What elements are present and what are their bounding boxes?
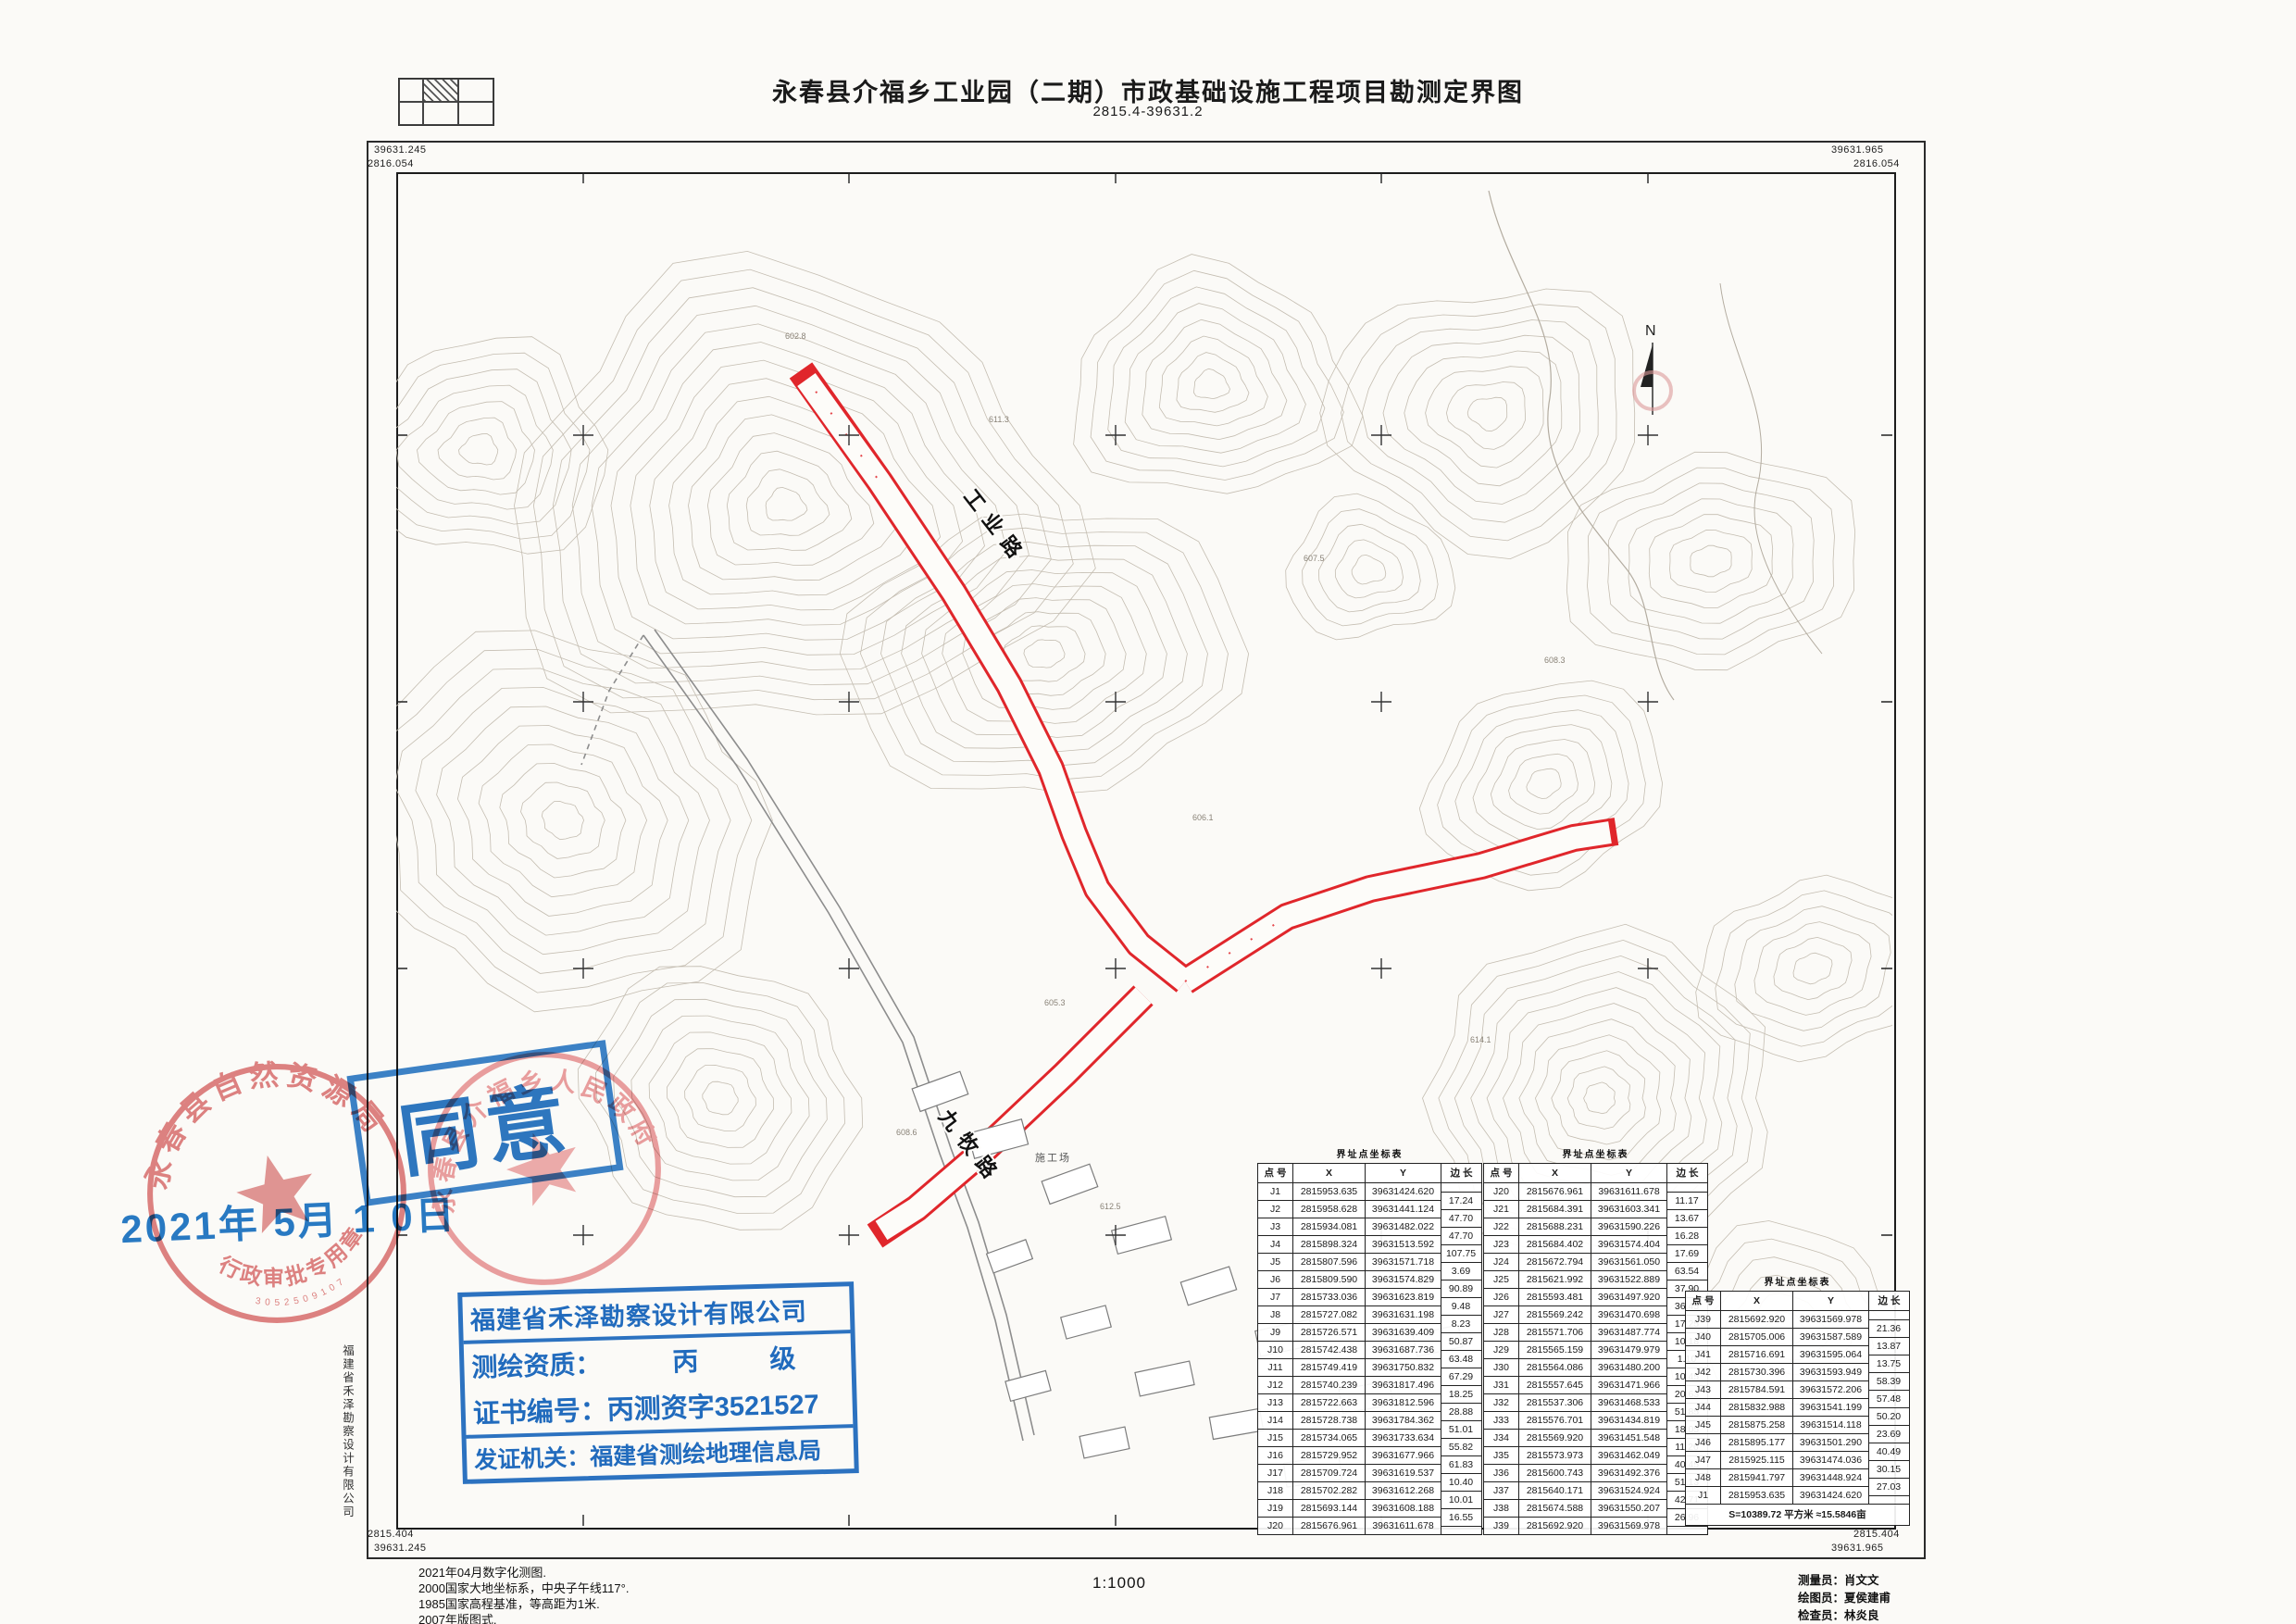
table-cell: 2815941.797 xyxy=(1721,1469,1793,1487)
table-title: 界址点坐标表 xyxy=(1685,1274,1910,1288)
table-cell: J30 xyxy=(1484,1359,1519,1377)
table-cell: 2815684.402 xyxy=(1519,1236,1591,1254)
table-cell: 2815571.706 xyxy=(1519,1324,1591,1342)
table-cell: 39631448.924 xyxy=(1793,1469,1869,1487)
contour-line xyxy=(1446,382,1525,450)
table-cell: J4 xyxy=(1258,1236,1293,1254)
table-cell: 2815749.419 xyxy=(1293,1359,1366,1377)
north-letter: N xyxy=(1645,323,1656,339)
contour-line xyxy=(1362,320,1598,523)
edge-length-value: 27.03 xyxy=(1869,1479,1909,1496)
corner-label: 39631.245 xyxy=(374,144,427,156)
contour-line xyxy=(479,744,647,897)
table-cell: J26 xyxy=(1484,1289,1519,1306)
table-cell: 2815674.588 xyxy=(1519,1500,1591,1518)
contour-line xyxy=(1527,768,1561,798)
table-cell: 39631451.548 xyxy=(1591,1430,1667,1447)
license-stamp: 福建省禾泽勘察设计有限公司 测绘资质： 丙 级 证书编号：丙测资字3521527… xyxy=(457,1281,859,1484)
table-cell: J16 xyxy=(1258,1447,1293,1465)
seal2-star xyxy=(498,1122,589,1211)
table-cell: 2815807.596 xyxy=(1293,1254,1366,1271)
license-qual-level: 级 xyxy=(769,1339,796,1377)
contour-line xyxy=(1341,305,1617,541)
edge-length-value: 30.15 xyxy=(1869,1461,1909,1479)
contour-line xyxy=(1491,740,1594,830)
grid-cross xyxy=(1371,425,1391,445)
edge-length-value: 63.48 xyxy=(1441,1351,1481,1368)
table-cell: 39631639.409 xyxy=(1366,1324,1441,1342)
table-cell: 2815684.391 xyxy=(1519,1201,1591,1218)
coordinate-table-3: 界址点坐标表 点 号XY边 长J392815692.92039631569.97… xyxy=(1685,1274,1910,1526)
table-cell: J3 xyxy=(1258,1218,1293,1236)
table-cell: 39631619.537 xyxy=(1366,1465,1441,1482)
contour-line xyxy=(457,726,668,917)
table-cell: 39631470.698 xyxy=(1591,1306,1667,1324)
edge-length-value: 47.70 xyxy=(1441,1228,1481,1245)
table-cell: J23 xyxy=(1484,1236,1519,1254)
table-cell: 39631471.966 xyxy=(1591,1377,1667,1394)
table-cell: J25 xyxy=(1484,1271,1519,1289)
table-cell: 2815640.171 xyxy=(1519,1482,1591,1500)
table-cell: 2815742.438 xyxy=(1293,1342,1366,1359)
contour-line xyxy=(1177,353,1249,413)
grid-cross xyxy=(573,425,593,445)
table-cell: 39631784.362 xyxy=(1366,1412,1441,1430)
table-cell: 2815875.258 xyxy=(1721,1417,1793,1434)
contour-line xyxy=(746,469,830,536)
table-cell: 2815784.591 xyxy=(1721,1381,1793,1399)
table-cell: 39631590.226 xyxy=(1591,1218,1667,1236)
table-cell: 2815569.242 xyxy=(1519,1306,1591,1324)
table-cell: 2815692.920 xyxy=(1721,1311,1793,1329)
legend-cell xyxy=(399,102,423,125)
corner-label: 39631.965 xyxy=(1831,1543,1884,1554)
table-cell: J46 xyxy=(1686,1434,1721,1452)
legend-cell xyxy=(458,102,493,125)
table-cell: J10 xyxy=(1258,1342,1293,1359)
edge-length-value: 40.49 xyxy=(1869,1443,1909,1461)
table-cell: J42 xyxy=(1686,1364,1721,1381)
table-cell: 39631750.832 xyxy=(1366,1359,1441,1377)
table-cell: J1 xyxy=(1686,1487,1721,1505)
table-header: X xyxy=(1293,1164,1366,1183)
area-summary: S=10389.72 平方米 ≈15.5846亩 xyxy=(1686,1505,1910,1526)
table-cell: J45 xyxy=(1686,1417,1721,1434)
edge-length-value: 50.87 xyxy=(1441,1333,1481,1351)
edge-length-value: 50.20 xyxy=(1869,1408,1909,1426)
edge-length-value: 13.87 xyxy=(1869,1338,1909,1355)
contour-line xyxy=(438,418,517,480)
contour-line xyxy=(685,1065,756,1131)
contour-line xyxy=(1716,891,1892,1046)
grid-cross xyxy=(1105,692,1126,712)
table-cell: 39631571.718 xyxy=(1366,1254,1441,1271)
table-cell: 2815573.973 xyxy=(1519,1447,1591,1465)
contour-line xyxy=(1608,483,1814,639)
contour-line xyxy=(1670,530,1753,592)
road-label-gongye: 工业路 xyxy=(959,485,1032,569)
contour-line xyxy=(1286,493,1455,640)
table-cell: J15 xyxy=(1258,1430,1293,1447)
table-cell: 39631434.819 xyxy=(1591,1412,1667,1430)
corner-label: 2816.054 xyxy=(368,158,414,169)
contour-line xyxy=(1320,289,1635,559)
table-cell: 39631501.290 xyxy=(1793,1434,1869,1452)
table-cell: 39631812.596 xyxy=(1366,1394,1441,1412)
legend-cell xyxy=(399,79,423,102)
table-cell: J18 xyxy=(1258,1482,1293,1500)
edge-length-value: 10.40 xyxy=(1441,1474,1481,1492)
table-cell: 39631611.678 xyxy=(1591,1183,1667,1201)
edge-length-value: 8.23 xyxy=(1441,1316,1481,1333)
table-cell: J34 xyxy=(1484,1430,1519,1447)
seal2-ring-text: 永春县介福乡人民政府 xyxy=(418,1043,666,1221)
table-header: Y xyxy=(1366,1164,1441,1183)
edge-length-value: 58.39 xyxy=(1869,1373,1909,1391)
table-header: 点 号 xyxy=(1686,1292,1721,1311)
corner-label: 39631.245 xyxy=(374,1543,427,1554)
table-cell: 39631817.496 xyxy=(1366,1377,1441,1394)
credits-block: 测量员：肖文文 绘图员：夏侯建甫 检查员：林炎良 xyxy=(1798,1572,1890,1624)
table-cell: 2815621.992 xyxy=(1519,1271,1591,1289)
contour-line xyxy=(1335,540,1403,598)
edge-length-value: 28.88 xyxy=(1441,1404,1481,1421)
contour-line xyxy=(667,1049,773,1148)
table-cell: 39631513.592 xyxy=(1366,1236,1441,1254)
table-cell: 2815565.159 xyxy=(1519,1342,1591,1359)
contour-line xyxy=(1193,369,1229,398)
grid-cross xyxy=(839,692,859,712)
spot-height-label: 608.3 xyxy=(1544,656,1566,665)
table-cell: 2815925.115 xyxy=(1721,1452,1793,1469)
table-cell: 2815693.144 xyxy=(1293,1500,1366,1518)
table-cell: 39631611.678 xyxy=(1366,1518,1441,1535)
table-cell: 39631623.819 xyxy=(1366,1289,1441,1306)
site-label: 施工场 xyxy=(1035,1151,1071,1164)
table-cell: 2815898.324 xyxy=(1293,1236,1366,1254)
edge-length-value: 11.17 xyxy=(1667,1193,1707,1210)
coordinate-table-1: 界址点坐标表 点 号XY边 长J12815953.63539631424.620… xyxy=(1257,1146,1482,1535)
edge-length-value: 61.83 xyxy=(1441,1456,1481,1474)
table-cell: J48 xyxy=(1686,1469,1721,1487)
grid-cross xyxy=(1638,692,1658,712)
contour-line xyxy=(1535,1035,1661,1160)
spot-height-label: 607.5 xyxy=(1304,554,1325,563)
table-cell: 39631468.533 xyxy=(1591,1394,1667,1412)
table-cell: J20 xyxy=(1258,1518,1293,1535)
table-cell: 39631574.404 xyxy=(1591,1236,1667,1254)
contour-line xyxy=(1774,937,1852,999)
table-cell: 2815953.635 xyxy=(1293,1183,1366,1201)
grid-cross xyxy=(839,1225,859,1245)
edge-length-value: 21.36 xyxy=(1869,1320,1909,1338)
spot-height-label: 612.5 xyxy=(1100,1202,1121,1211)
contour-line xyxy=(500,764,626,879)
stream-line xyxy=(1489,191,1674,700)
table-cell: J29 xyxy=(1484,1342,1519,1359)
edge-length-column: 17.2447.7047.70107.753.6990.899.488.2350… xyxy=(1441,1183,1481,1527)
page-subtitle: 2815.4-39631.2 xyxy=(0,104,2296,119)
credit-checker: 检查员：林炎良 xyxy=(1798,1607,1890,1624)
table-cell: 39631487.774 xyxy=(1591,1324,1667,1342)
contour-line xyxy=(649,1032,792,1164)
grid-cross xyxy=(1371,958,1391,979)
coordinate-table-2: 界址点坐标表 点 号XY边 长J202815676.96139631611.67… xyxy=(1483,1146,1708,1535)
edge-length-value: 47.70 xyxy=(1441,1210,1481,1228)
contour-line xyxy=(396,369,571,524)
edge-length-value: 13.75 xyxy=(1869,1355,1909,1373)
contour-line xyxy=(1426,367,1544,468)
contour-line xyxy=(1588,468,1835,655)
table-cell: J36 xyxy=(1484,1465,1519,1482)
table-cell: J17 xyxy=(1258,1465,1293,1482)
table-cell: J24 xyxy=(1484,1254,1519,1271)
table-header: X xyxy=(1721,1292,1793,1311)
legend-box xyxy=(398,78,494,126)
note-line: 1985国家高程基准，等高距为1米. xyxy=(418,1596,629,1612)
table-cell: 2815564.086 xyxy=(1519,1359,1591,1377)
corner-label: 39631.965 xyxy=(1831,144,1884,156)
table-cell: 39631514.118 xyxy=(1793,1417,1869,1434)
contour-line xyxy=(396,668,730,974)
table-cell: 2815600.743 xyxy=(1519,1465,1591,1482)
edge-length-value: 3.69 xyxy=(1441,1263,1481,1280)
edge-length-value: 17.24 xyxy=(1441,1193,1481,1210)
spot-height-label: 614.1 xyxy=(1470,1035,1491,1044)
edge-length-value: 16.55 xyxy=(1441,1509,1481,1527)
contour-line xyxy=(1074,255,1363,494)
contour-line xyxy=(1509,754,1578,814)
contour-line xyxy=(1108,287,1325,467)
svg-text:永春县介福乡人民政府: 永春县介福乡人民政府 xyxy=(418,1043,666,1221)
spot-height-label: 606.1 xyxy=(1192,813,1214,822)
edge-length-value: 67.29 xyxy=(1441,1368,1481,1386)
table-header: 边 长 xyxy=(1869,1292,1910,1311)
table-cell: 39631569.978 xyxy=(1591,1518,1667,1535)
table-cell: J40 xyxy=(1686,1329,1721,1346)
table-cell: 39631677.966 xyxy=(1366,1447,1441,1465)
grid-cross xyxy=(1638,958,1658,979)
table-cell: J14 xyxy=(1258,1412,1293,1430)
table-cell: J35 xyxy=(1484,1447,1519,1465)
table-cell: J47 xyxy=(1686,1452,1721,1469)
table-cell: 2815726.571 xyxy=(1293,1324,1366,1342)
edge-length-value: 55.82 xyxy=(1441,1439,1481,1456)
contour-line xyxy=(1696,875,1892,1062)
edge-length-value: 23.69 xyxy=(1869,1426,1909,1443)
grid-cross xyxy=(573,958,593,979)
grid-cross xyxy=(1105,958,1126,979)
corner-label: 2815.404 xyxy=(368,1529,414,1540)
map-scale: 1:1000 xyxy=(1092,1574,1146,1593)
contour-line xyxy=(703,1081,738,1115)
north-arrow: N xyxy=(1634,323,1671,415)
table-cell: J9 xyxy=(1258,1324,1293,1342)
table-cell: J41 xyxy=(1686,1346,1721,1364)
note-line: 2021年04月数字化测图. xyxy=(418,1565,629,1580)
contour-line xyxy=(1467,397,1507,431)
table-cell: 39631561.050 xyxy=(1591,1254,1667,1271)
table-cell: J13 xyxy=(1258,1394,1293,1412)
table-title: 界址点坐标表 xyxy=(1483,1146,1708,1160)
table-cell: 39631424.620 xyxy=(1793,1487,1869,1505)
table-cell: 2815733.036 xyxy=(1293,1289,1366,1306)
table-cell: 39631574.829 xyxy=(1366,1271,1441,1289)
contour-line xyxy=(1628,499,1793,623)
contour-line xyxy=(396,631,772,1012)
table-cell: 39631593.949 xyxy=(1793,1364,1869,1381)
table-cell: J12 xyxy=(1258,1377,1293,1394)
edge-length-value: 9.48 xyxy=(1441,1298,1481,1316)
contour-line xyxy=(1691,545,1731,577)
red-seal-township-government: 永春县介福乡人民政府 xyxy=(418,1043,670,1294)
table-cell: 39631733.634 xyxy=(1366,1430,1441,1447)
table-cell: 2815727.082 xyxy=(1293,1306,1366,1324)
table-cell: J28 xyxy=(1484,1324,1519,1342)
contour-line xyxy=(1754,922,1871,1016)
grid-cross xyxy=(1371,692,1391,712)
table-cell: 39631497.920 xyxy=(1591,1289,1667,1306)
license-qual-label: 测绘资质： xyxy=(471,1344,602,1385)
table-header: X xyxy=(1519,1164,1591,1183)
contour-line xyxy=(1584,1082,1616,1114)
table-header: 边 长 xyxy=(1667,1164,1708,1183)
contour-line xyxy=(1567,1067,1630,1130)
note-line: 2000国家大地坐标系，中央子午线117°. xyxy=(418,1580,629,1596)
contour-line xyxy=(1024,640,1065,668)
table-cell: 39631603.341 xyxy=(1591,1201,1667,1218)
spot-height-label: 605.3 xyxy=(1044,998,1066,1007)
contour-line xyxy=(542,802,583,840)
spot-height-label: 608.6 xyxy=(896,1128,917,1137)
table-cell: 2815740.239 xyxy=(1293,1377,1366,1394)
table-cell: 2815676.961 xyxy=(1519,1183,1591,1201)
table-cell: J19 xyxy=(1258,1500,1293,1518)
map-notes: 2021年04月数字化测图. 2000国家大地坐标系，中央子午线117°. 19… xyxy=(418,1565,629,1624)
table-cell: 2815832.988 xyxy=(1721,1399,1793,1417)
table-cell: 39631492.376 xyxy=(1591,1465,1667,1482)
table-cell: 39631572.206 xyxy=(1793,1381,1869,1399)
table-cell: J44 xyxy=(1686,1399,1721,1417)
table-cell: J27 xyxy=(1484,1306,1519,1324)
table-cell: 2815576.701 xyxy=(1519,1412,1591,1430)
table-cell: 39631424.620 xyxy=(1366,1183,1441,1201)
edge-length-value: 90.89 xyxy=(1441,1280,1481,1298)
contour-line xyxy=(437,706,689,935)
contour-line xyxy=(1649,515,1772,608)
table-cell: 39631550.207 xyxy=(1591,1500,1667,1518)
table-header: 点 号 xyxy=(1484,1164,1519,1183)
table-cell: 2815722.663 xyxy=(1293,1394,1366,1412)
table-cell: 2815734.065 xyxy=(1293,1430,1366,1447)
table-title: 界址点坐标表 xyxy=(1257,1146,1482,1160)
table-cell: J11 xyxy=(1258,1359,1293,1377)
license-qual-grade: 丙 xyxy=(672,1342,699,1380)
contour-line xyxy=(1142,319,1287,439)
note-line: 2007年版图式. xyxy=(418,1612,629,1624)
table-cell: 39631474.036 xyxy=(1793,1452,1869,1469)
table-cell: 39631479.979 xyxy=(1591,1342,1667,1359)
table-cell: 2815688.231 xyxy=(1519,1218,1591,1236)
table-cell: 2815934.081 xyxy=(1293,1218,1366,1236)
edge-length-value: 51.01 xyxy=(1441,1421,1481,1439)
credit-surveyor: 测量员：肖文文 xyxy=(1798,1572,1890,1590)
legend-cell xyxy=(458,79,493,102)
table-header: Y xyxy=(1793,1292,1869,1311)
table-cell: 2815593.481 xyxy=(1519,1289,1591,1306)
table-cell: 39631595.064 xyxy=(1793,1346,1869,1364)
contour-line xyxy=(1091,270,1343,480)
table-cell: 39631569.978 xyxy=(1793,1311,1869,1329)
contour-line xyxy=(1318,524,1420,612)
table-cell: 39631522.889 xyxy=(1591,1271,1667,1289)
table-cell: 39631687.736 xyxy=(1366,1342,1441,1359)
table-cell: 39631462.049 xyxy=(1591,1447,1667,1465)
table-cell: J21 xyxy=(1484,1201,1519,1218)
table-cell: J20 xyxy=(1484,1183,1519,1201)
edge-length-column: 21.3613.8713.7558.3957.4850.2023.6940.49… xyxy=(1869,1311,1909,1496)
edge-length-value: 107.75 xyxy=(1441,1245,1481,1263)
table-cell: 2815537.306 xyxy=(1519,1394,1591,1412)
edge-length-value: 16.28 xyxy=(1667,1228,1707,1245)
table-cell: 2815895.177 xyxy=(1721,1434,1793,1452)
corner-label: 2815.404 xyxy=(1853,1529,1900,1540)
table-cell: 39631631.198 xyxy=(1366,1306,1441,1324)
table-cell: 2815716.691 xyxy=(1721,1346,1793,1364)
table-cell: 39631441.124 xyxy=(1366,1201,1441,1218)
corner-label: 2816.054 xyxy=(1853,158,1900,169)
table-cell: 39631608.188 xyxy=(1366,1500,1441,1518)
table-cell: J32 xyxy=(1484,1394,1519,1412)
table-cell: 2815569.920 xyxy=(1519,1430,1591,1447)
table-cell: 2815672.794 xyxy=(1519,1254,1591,1271)
contour-line xyxy=(1352,555,1386,584)
edge-length-value: 18.25 xyxy=(1441,1386,1481,1404)
table-cell: J33 xyxy=(1484,1412,1519,1430)
legend-cell xyxy=(423,102,458,125)
table-cell: 2815702.282 xyxy=(1293,1482,1366,1500)
grid-cross xyxy=(1638,425,1658,445)
table-cell: J22 xyxy=(1484,1218,1519,1236)
table-header: Y xyxy=(1591,1164,1667,1183)
table-header: 边 长 xyxy=(1441,1164,1482,1183)
table-cell: J37 xyxy=(1484,1482,1519,1500)
edge-length-value: 17.69 xyxy=(1667,1245,1707,1263)
table-cell: J39 xyxy=(1686,1311,1721,1329)
contour-line xyxy=(418,402,535,494)
edge-length-value: 13.67 xyxy=(1667,1210,1707,1228)
contour-line xyxy=(1793,953,1832,984)
table-cell: J6 xyxy=(1258,1271,1293,1289)
table-cell: 2815953.635 xyxy=(1721,1487,1793,1505)
spot-height-label: 611.3 xyxy=(989,415,1009,424)
table-cell: 39631612.268 xyxy=(1366,1482,1441,1500)
table-header: 点 号 xyxy=(1258,1164,1293,1183)
grid-cross xyxy=(1105,425,1126,445)
credit-drafter: 绘图员：夏侯建甫 xyxy=(1798,1590,1890,1607)
table-cell: J1 xyxy=(1258,1183,1293,1201)
contour-line xyxy=(521,782,605,858)
survey-sheet: 永春县介福乡工业园（二期）市政基础设施工程项目勘测定界图 2815.4-3963… xyxy=(0,0,2296,1624)
table-cell: J7 xyxy=(1258,1289,1293,1306)
contour-line xyxy=(766,487,807,520)
table-cell: J31 xyxy=(1484,1377,1519,1394)
table-cell: 39631524.924 xyxy=(1591,1482,1667,1500)
table-cell: J2 xyxy=(1258,1201,1293,1218)
table-cell: J38 xyxy=(1484,1500,1519,1518)
table-cell: 2815705.006 xyxy=(1721,1329,1793,1346)
table-cell: 2815729.952 xyxy=(1293,1447,1366,1465)
